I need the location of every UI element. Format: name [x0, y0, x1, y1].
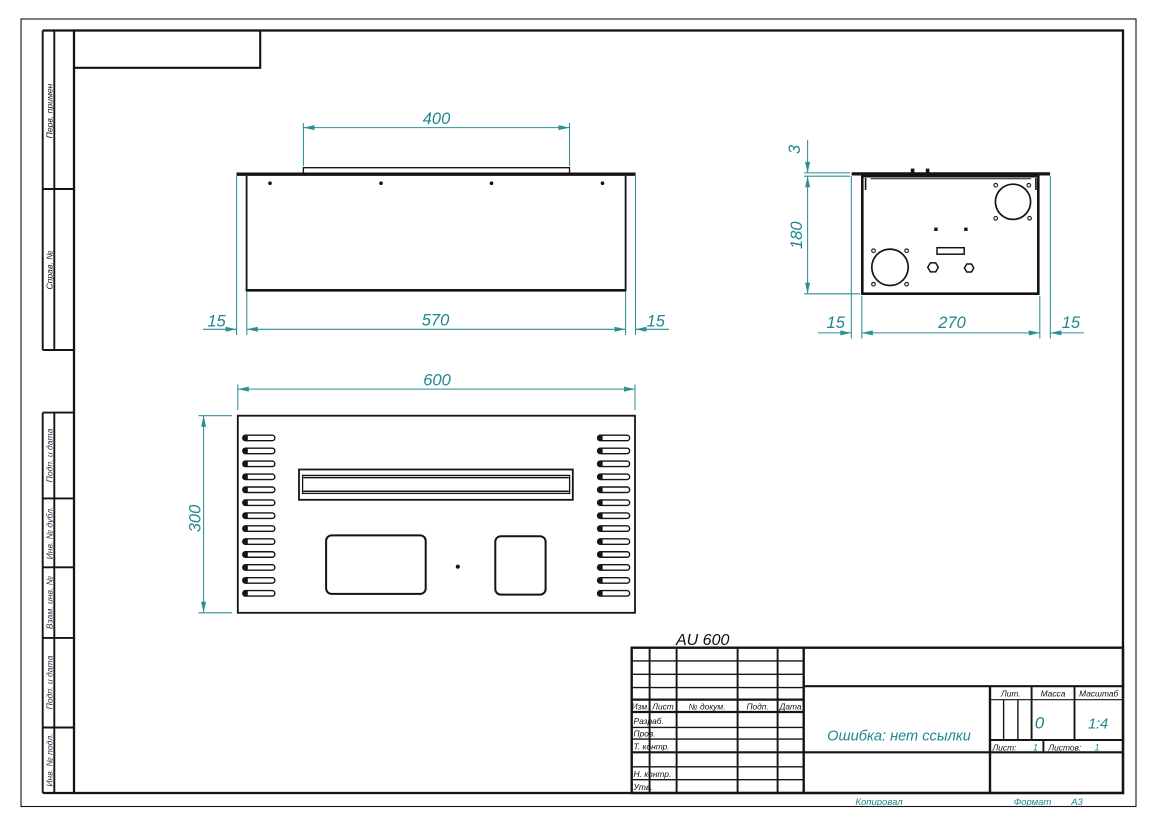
svg-text:Лист:: Лист: — [992, 742, 1017, 752]
svg-text:400: 400 — [423, 110, 451, 128]
svg-text:270: 270 — [937, 314, 966, 332]
svg-text:Листов:: Листов: — [1047, 742, 1081, 752]
svg-text:Инв. № подл.: Инв. № подл. — [45, 733, 55, 786]
svg-text:Копировал: Копировал — [855, 797, 903, 808]
svg-text:Инв. № дубл.: Инв. № дубл. — [45, 507, 55, 560]
svg-text:1:4: 1:4 — [1088, 716, 1108, 733]
svg-text:Формат: Формат — [1014, 797, 1052, 808]
svg-text:Дата: Дата — [778, 702, 801, 712]
svg-text:AU 600: AU 600 — [675, 632, 729, 649]
svg-text:15: 15 — [647, 313, 666, 331]
svg-text:Перв. примен: Перв. примен — [45, 83, 55, 138]
svg-text:Подп. и дата: Подп. и дата — [45, 655, 55, 709]
svg-text:Лит.: Лит. — [1000, 689, 1021, 699]
svg-text:570: 570 — [422, 312, 450, 330]
svg-text:№ докум.: № докум. — [689, 702, 726, 712]
svg-text:Справ. №: Справ. № — [45, 250, 55, 289]
svg-text:А3: А3 — [1070, 797, 1083, 808]
svg-text:180: 180 — [788, 221, 806, 249]
svg-text:Н. контр.: Н. контр. — [634, 769, 672, 779]
svg-text:300: 300 — [186, 504, 204, 532]
svg-text:600: 600 — [423, 372, 451, 390]
svg-text:1: 1 — [1033, 742, 1038, 752]
svg-text:Изм.: Изм. — [632, 702, 650, 712]
svg-text:Лист: Лист — [651, 702, 674, 712]
svg-text:1: 1 — [1095, 742, 1100, 752]
svg-text:Масса: Масса — [1041, 689, 1066, 699]
svg-text:15: 15 — [1062, 314, 1081, 332]
svg-text:Т. контр.: Т. контр. — [634, 742, 670, 752]
svg-text:Ошибка: нет ссылки: Ошибка: нет ссылки — [827, 729, 971, 745]
svg-text:15: 15 — [207, 313, 226, 331]
svg-text:Взам. инв. №: Взам. инв. № — [45, 576, 55, 629]
svg-text:0: 0 — [1035, 714, 1045, 733]
svg-text:15: 15 — [827, 314, 846, 332]
svg-text:Подп. и дата: Подп. и дата — [45, 428, 55, 482]
svg-text:3: 3 — [786, 144, 804, 154]
svg-text:Масштаб: Масштаб — [1079, 689, 1118, 699]
svg-text:Пров.: Пров. — [634, 729, 656, 739]
svg-text:Разраб.: Разраб. — [634, 716, 664, 726]
svg-text:Подп.: Подп. — [746, 702, 768, 712]
svg-text:Утв.: Утв. — [633, 782, 653, 792]
